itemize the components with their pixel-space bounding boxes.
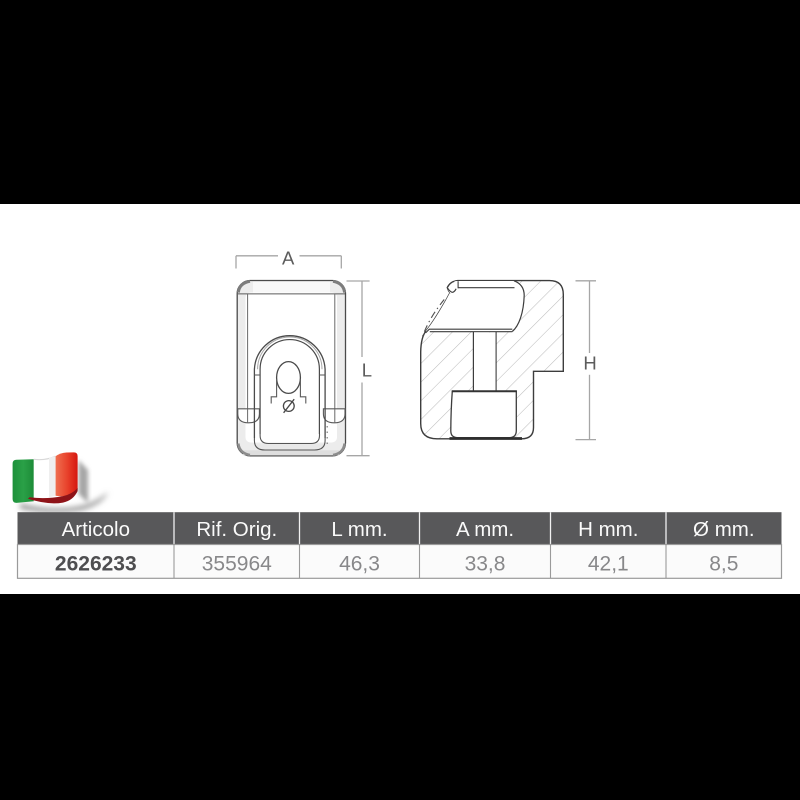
- svg-text:33,8: 33,8: [465, 553, 506, 576]
- svg-text:H: H: [583, 353, 596, 374]
- svg-text:L: L: [362, 360, 372, 381]
- svg-text:Rif. Orig.: Rif. Orig.: [196, 518, 277, 541]
- svg-text:A mm.: A mm.: [456, 518, 514, 541]
- svg-text:355964: 355964: [202, 553, 272, 576]
- svg-text:2626233: 2626233: [55, 553, 137, 576]
- svg-text:Articolo: Articolo: [62, 518, 130, 541]
- svg-text:42,1: 42,1: [588, 553, 629, 576]
- svg-text:A: A: [282, 248, 295, 269]
- svg-text:L mm.: L mm.: [331, 518, 387, 541]
- svg-text:Ø mm.: Ø mm.: [693, 518, 755, 541]
- svg-text:H mm.: H mm.: [578, 518, 638, 541]
- svg-text:46,3: 46,3: [339, 553, 380, 576]
- svg-text:8,5: 8,5: [709, 553, 738, 576]
